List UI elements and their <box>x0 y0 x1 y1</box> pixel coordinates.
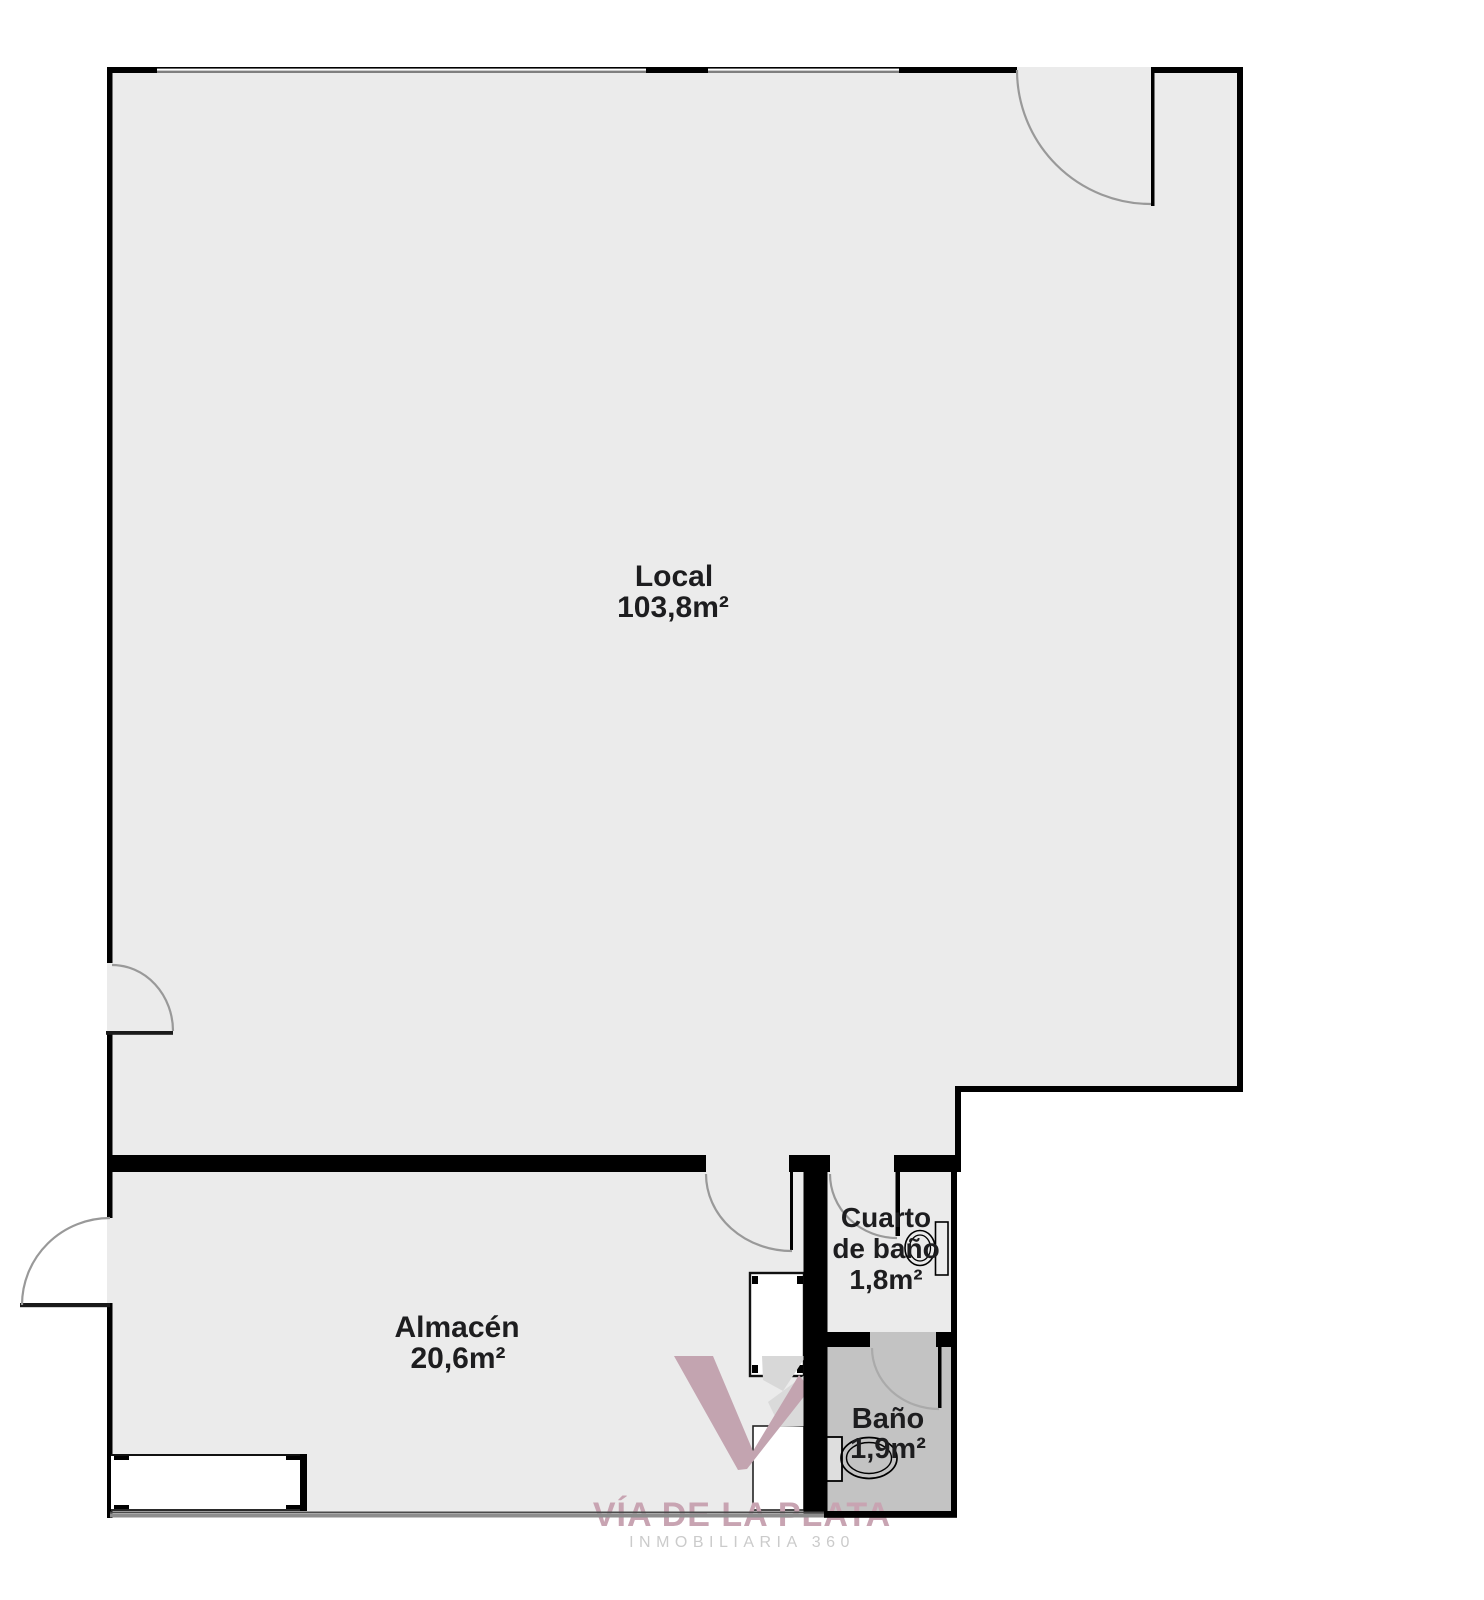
svg-text:INMOBILIARIA 360: INMOBILIARIA 360 <box>629 1534 855 1551</box>
svg-text:Almacén: Almacén <box>394 1311 519 1344</box>
svg-text:Local: Local <box>635 560 713 593</box>
svg-text:Cuarto: Cuarto <box>841 1202 931 1233</box>
svg-text:Baño: Baño <box>852 1403 925 1435</box>
svg-text:103,8m²: 103,8m² <box>617 591 729 624</box>
svg-text:1,9m²: 1,9m² <box>850 1433 926 1465</box>
svg-text:20,6m²: 20,6m² <box>410 1342 505 1375</box>
svg-text:1,8m²: 1,8m² <box>849 1264 922 1295</box>
svg-text:de baño: de baño <box>832 1233 939 1264</box>
